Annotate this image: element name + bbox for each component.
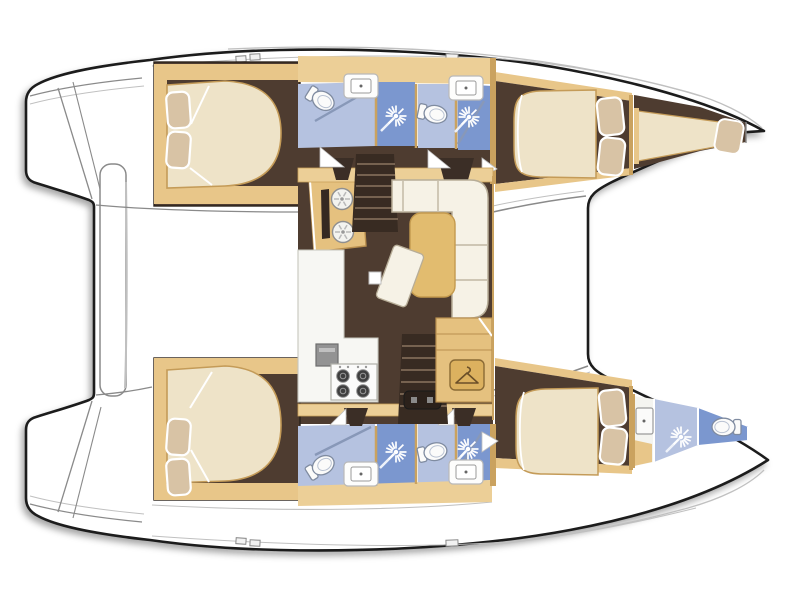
oven-vent — [319, 348, 335, 352]
bathroom-aft-shower — [377, 424, 415, 486]
washbasin — [449, 76, 483, 100]
locker-wedge — [634, 440, 652, 466]
pillow — [166, 131, 191, 169]
toilet-icon — [712, 418, 741, 436]
cabin-shelf-bottom — [154, 186, 298, 204]
double-bed — [516, 388, 598, 475]
washbasin — [344, 462, 378, 486]
aft-platform — [100, 164, 126, 396]
catamaran-floor-plan — [0, 0, 801, 600]
pillow — [166, 91, 191, 129]
shower-sunburst-icon — [459, 107, 480, 128]
doorway — [438, 158, 474, 180]
pillow — [713, 118, 744, 155]
port-aft-cabin — [154, 62, 300, 206]
stool — [369, 272, 381, 284]
galley-sink-icon — [332, 189, 353, 210]
pillow — [596, 97, 625, 136]
bulkhead — [629, 95, 633, 175]
oven — [316, 344, 338, 366]
wardrobe — [436, 318, 492, 402]
bulkhead — [631, 394, 635, 468]
double-bed — [514, 90, 596, 178]
washbasin-drain — [643, 420, 646, 423]
starboard-forward-cabin — [482, 358, 633, 486]
washbasin — [344, 74, 378, 98]
cabin-shelf-top — [154, 64, 298, 80]
cabin-shelf-left — [154, 64, 167, 204]
galley-sink-icon — [333, 222, 354, 243]
washbasin — [449, 460, 483, 484]
shower-sunburst-icon — [671, 427, 692, 448]
wardrobe-hanger-icon — [450, 360, 484, 390]
cabin-shelf-left — [154, 360, 167, 498]
stove — [331, 364, 377, 400]
bulkhead — [490, 424, 496, 486]
starboard-bathrooms — [298, 424, 492, 506]
pillow — [166, 418, 191, 456]
berth-base — [634, 108, 639, 164]
shower-sunburst-icon — [458, 439, 479, 460]
pillow — [166, 458, 191, 496]
port-bathrooms — [298, 56, 492, 150]
catamaran-floor-plan-page — [0, 0, 801, 600]
port-forepeak-berth — [634, 95, 746, 169]
pillow — [599, 427, 628, 465]
staircase-port — [352, 154, 398, 232]
starboard-aft-cabin — [154, 358, 300, 500]
shower-sunburst-icon — [386, 106, 407, 127]
shower-sunburst-icon — [386, 442, 407, 463]
pillow — [598, 389, 627, 427]
galley-slot — [321, 189, 330, 239]
pillow — [597, 137, 626, 176]
